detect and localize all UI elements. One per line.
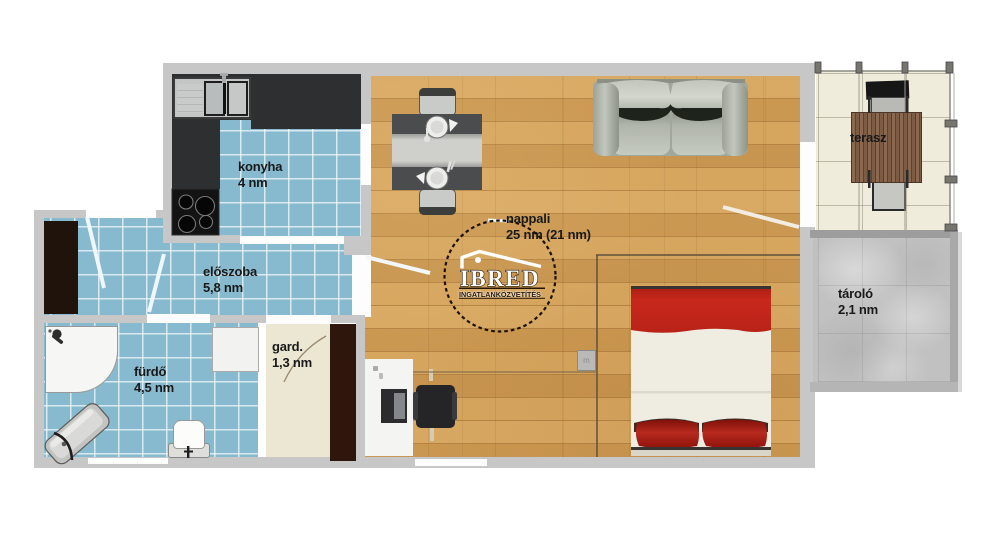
svg-text:IBRED: IBRED [460,266,540,291]
svg-text:INGATLANKÖZVETÍTÉS: INGATLANKÖZVETÍTÉS [459,290,541,299]
